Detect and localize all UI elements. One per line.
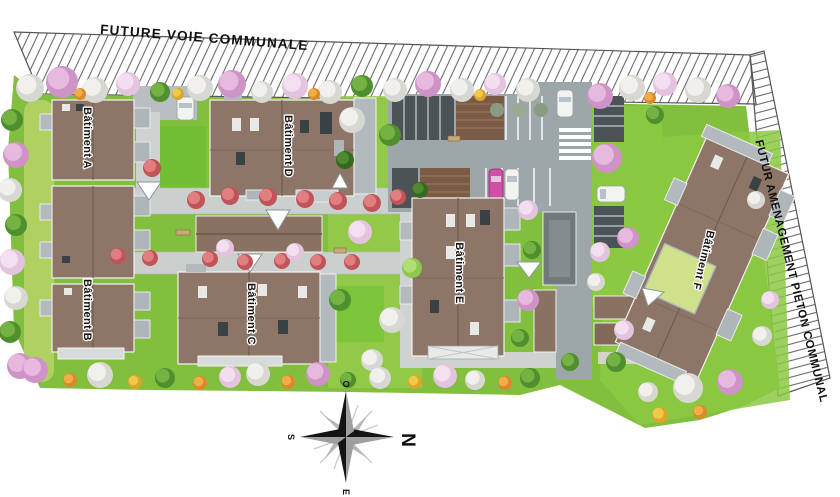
tree [187, 191, 205, 209]
tree [379, 307, 405, 333]
tree [5, 214, 27, 236]
tree [383, 78, 407, 102]
tree [716, 84, 740, 108]
compass-north-label: N [397, 433, 418, 447]
tree [590, 242, 610, 262]
tree [693, 405, 707, 419]
tree [638, 382, 658, 402]
tree [369, 367, 391, 389]
car-icon [177, 97, 194, 120]
tree [344, 254, 360, 270]
tree [329, 192, 347, 210]
building-c-label: Bâtiment C [245, 283, 257, 345]
tree [143, 159, 161, 177]
van-icon [597, 186, 625, 202]
tree [339, 107, 365, 133]
tree [110, 248, 126, 264]
bench [334, 248, 346, 253]
car-icon-pink [489, 169, 503, 200]
tree [259, 188, 277, 206]
tree [363, 194, 381, 212]
tree [415, 71, 441, 97]
tree [0, 321, 21, 343]
tree [4, 286, 28, 310]
building-d-label: Bâtiment D [282, 115, 294, 177]
building-a [40, 100, 150, 180]
tree [1, 109, 23, 131]
tree [433, 364, 457, 388]
tree [408, 375, 422, 389]
tree [685, 77, 711, 103]
compass-south-label: S [286, 434, 296, 440]
tree [587, 273, 605, 291]
tree [187, 75, 213, 101]
tree [379, 124, 401, 146]
tree [310, 254, 326, 270]
tree [517, 289, 539, 311]
tree [474, 89, 486, 101]
tree [523, 241, 541, 259]
tree [351, 75, 373, 97]
tree [318, 80, 342, 104]
tree [74, 88, 86, 100]
tree [617, 227, 639, 249]
tree [172, 88, 184, 100]
parking-bays-dark-upper [392, 96, 454, 140]
tree [412, 182, 428, 198]
tree [644, 92, 656, 104]
tree [219, 366, 241, 388]
tree [606, 352, 626, 372]
compass-rose: N O E S [286, 380, 418, 495]
tree [498, 376, 512, 390]
tree [592, 143, 622, 173]
tree [465, 370, 485, 390]
tree [587, 83, 613, 109]
tree [0, 249, 25, 275]
tree [652, 407, 668, 423]
tree [193, 376, 207, 390]
tree [390, 189, 406, 205]
shrub [490, 103, 504, 117]
building-e-canopy [428, 346, 498, 359]
tree [296, 190, 314, 208]
tree [520, 368, 540, 388]
compass-east-label: E [341, 489, 351, 495]
tree [46, 66, 78, 98]
tree [16, 74, 44, 102]
tree [3, 142, 29, 168]
shrub [512, 103, 526, 117]
tree [281, 375, 295, 389]
bench [448, 136, 460, 141]
bench [176, 230, 190, 235]
tree [237, 254, 253, 270]
site-plan: Bâtiment A Bâtiment B Bâtiment C Bâtimen… [0, 0, 840, 497]
tree [202, 251, 218, 267]
tree [673, 373, 703, 403]
tree [82, 77, 108, 103]
tree [402, 258, 422, 278]
tree [286, 243, 304, 261]
tree [306, 362, 330, 386]
tree [761, 291, 779, 309]
tree [221, 187, 239, 205]
tree [336, 151, 354, 169]
tree [218, 70, 246, 98]
tree [484, 73, 506, 95]
building-e-label: Bâtiment E [453, 242, 465, 303]
tree [282, 73, 308, 99]
tree [348, 220, 372, 244]
compass-west-label: O [341, 380, 351, 387]
tree [747, 191, 765, 209]
tree [216, 239, 234, 257]
tree [561, 353, 579, 371]
shrub [534, 103, 548, 117]
tree [155, 368, 175, 388]
car-icon [557, 90, 573, 117]
tree [87, 362, 113, 388]
shed-roof-panel [549, 220, 570, 277]
building-b [40, 284, 150, 359]
tree [22, 357, 48, 383]
tree [646, 106, 664, 124]
carport-upper [456, 96, 504, 140]
lawn-strip-west [24, 100, 54, 382]
tree [128, 375, 142, 389]
building-a-label: Bâtiment A [81, 107, 93, 169]
tree [450, 78, 474, 102]
building-b-label: Bâtiment B [81, 279, 93, 341]
car-icon [505, 169, 519, 200]
site-plan-canvas: Bâtiment A Bâtiment B Bâtiment C Bâtimen… [0, 0, 840, 497]
tree [116, 72, 140, 96]
tree [619, 75, 645, 101]
compass-cardinal-arms [300, 391, 394, 483]
tree [308, 88, 320, 100]
tree [717, 369, 743, 395]
building-a-south-wing [40, 186, 150, 278]
tree [516, 78, 540, 102]
tree [150, 82, 170, 102]
tree [752, 326, 772, 346]
tree [142, 250, 158, 266]
tree [329, 289, 351, 311]
tree [251, 81, 273, 103]
tree [63, 373, 77, 387]
tree [511, 329, 529, 347]
tree [246, 362, 270, 386]
tree [614, 320, 634, 340]
tree [653, 72, 677, 96]
tree [518, 200, 538, 220]
